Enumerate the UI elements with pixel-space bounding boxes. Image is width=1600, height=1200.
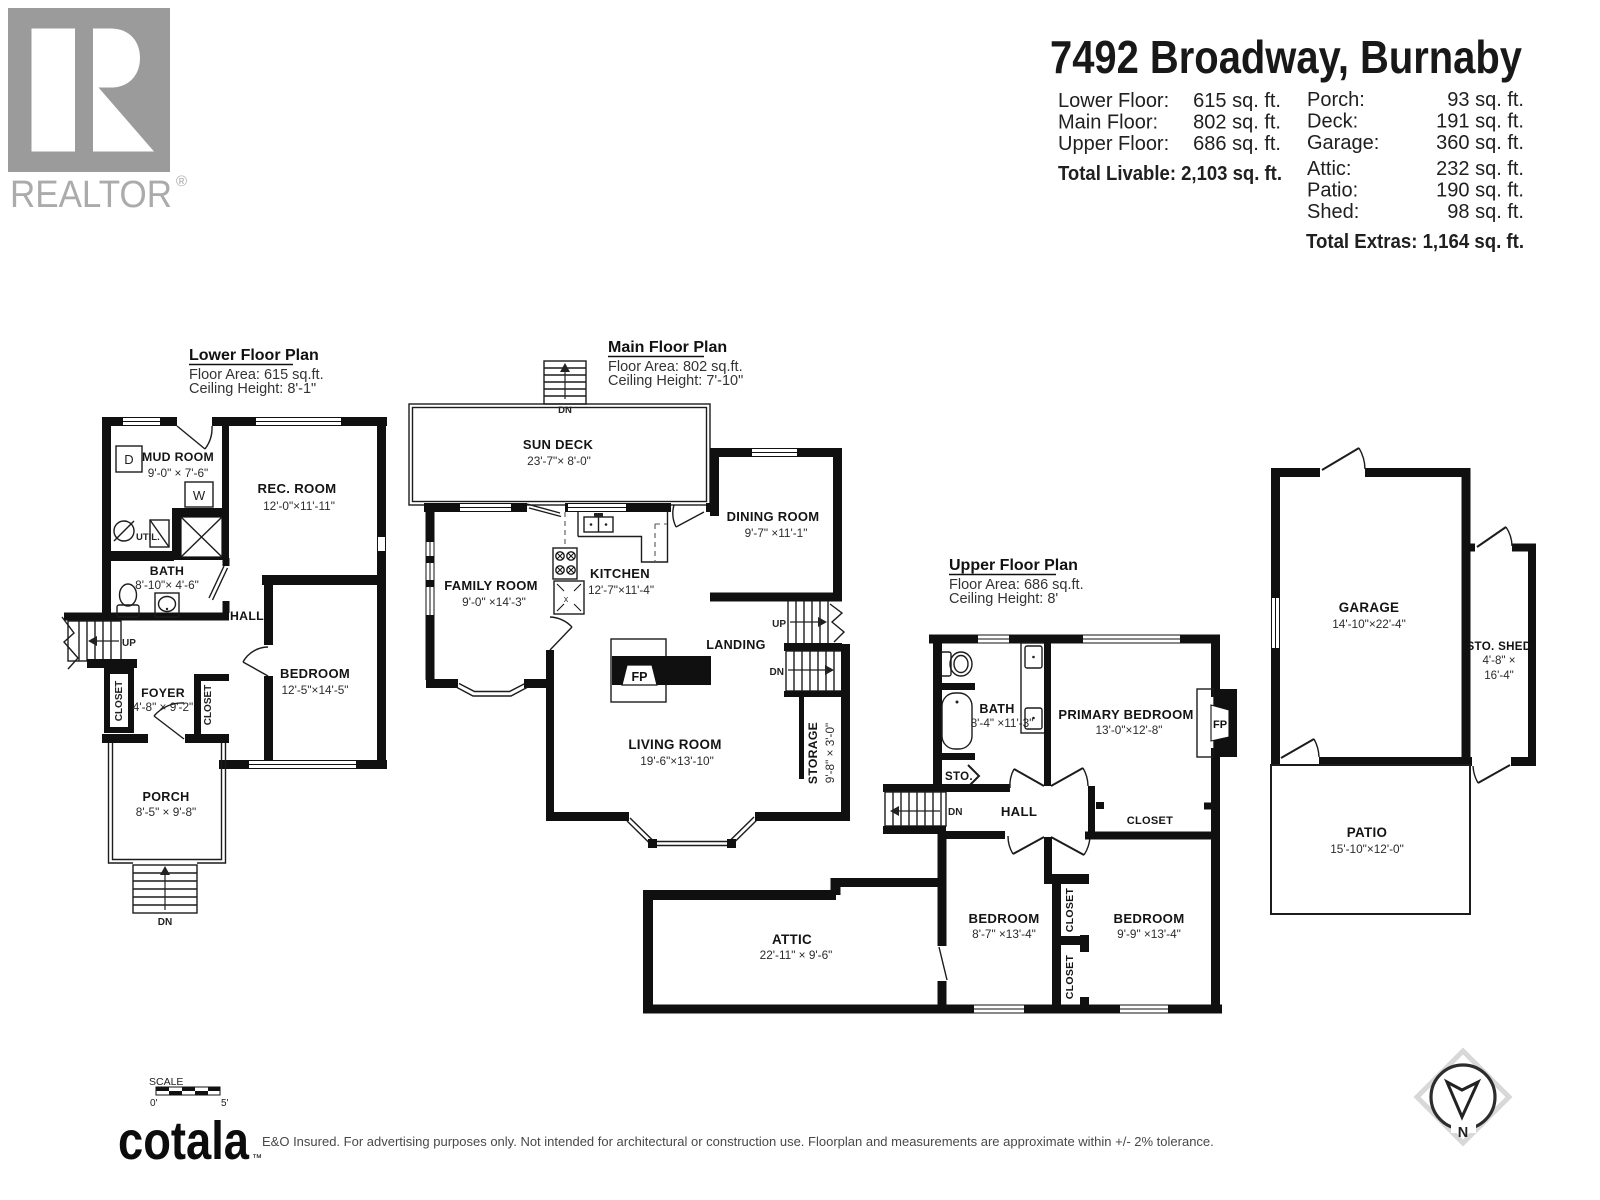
svg-text:686 sq. ft.: 686 sq. ft. xyxy=(1193,133,1281,155)
svg-text:HALL: HALL xyxy=(230,609,264,623)
svg-text:14'-10"×22'-4": 14'-10"×22'-4" xyxy=(1332,617,1406,631)
svg-text:UP: UP xyxy=(772,619,786,630)
svg-text:15'-10"×12'-0": 15'-10"×12'-0" xyxy=(1330,842,1404,856)
svg-text:9'-0" ×14'-3": 9'-0" ×14'-3" xyxy=(462,595,526,609)
svg-text:MUD ROOM: MUD ROOM xyxy=(142,450,214,464)
svg-text:GARAGE: GARAGE xyxy=(1339,600,1400,615)
svg-text:®: ® xyxy=(176,173,187,190)
svg-text:CLOSET: CLOSET xyxy=(1127,815,1173,827)
svg-text:BEDROOM: BEDROOM xyxy=(280,666,350,681)
svg-text:CLOSET: CLOSET xyxy=(1064,888,1076,933)
svg-text:KITCHEN: KITCHEN xyxy=(590,566,650,581)
svg-text:LIVING ROOM: LIVING ROOM xyxy=(628,737,721,752)
svg-text:12'-7"×11'-4": 12'-7"×11'-4" xyxy=(588,583,654,597)
svg-text:PATIO: PATIO xyxy=(1347,825,1387,840)
svg-text:FAMILY ROOM: FAMILY ROOM xyxy=(444,578,538,593)
svg-text:ATTIC: ATTIC xyxy=(772,932,812,947)
svg-text:0': 0' xyxy=(150,1098,158,1109)
svg-text:STORAGE: STORAGE xyxy=(806,722,820,784)
svg-text:Upper Floor Plan: Upper Floor Plan xyxy=(949,557,1078,574)
svg-text:FOYER: FOYER xyxy=(141,686,185,700)
svg-text:BEDROOM: BEDROOM xyxy=(969,911,1040,926)
svg-text:Lower Floor:: Lower Floor: xyxy=(1058,90,1169,112)
svg-text:Garage:: Garage: xyxy=(1307,132,1379,154)
svg-text:Upper Floor:: Upper Floor: xyxy=(1058,133,1169,155)
svg-text:FP: FP xyxy=(632,670,648,684)
svg-text:Shed:: Shed: xyxy=(1307,201,1359,223)
svg-text:Deck:: Deck: xyxy=(1307,111,1358,133)
svg-text:Ceiling Height: 8'-1": Ceiling Height: 8'-1" xyxy=(189,381,316,397)
svg-text:8'-5" × 9'-8": 8'-5" × 9'-8" xyxy=(136,805,196,819)
svg-text:8'-4" ×11'-3": 8'-4" ×11'-3" xyxy=(971,716,1034,730)
svg-text:BEDROOM: BEDROOM xyxy=(1114,911,1185,926)
svg-text:cotala: cotala xyxy=(118,1111,250,1171)
svg-text:™: ™ xyxy=(252,1153,262,1164)
svg-text:22'-11" × 9'-6": 22'-11" × 9'-6" xyxy=(760,948,833,962)
svg-text:9'-7" ×11'-1": 9'-7" ×11'-1" xyxy=(745,526,808,540)
svg-text:4'-8" × 9'-2": 4'-8" × 9'-2" xyxy=(133,700,193,714)
svg-text:Ceiling Height: 8': Ceiling Height: 8' xyxy=(949,591,1058,607)
svg-text:BATH: BATH xyxy=(150,564,184,578)
svg-text:BATH: BATH xyxy=(979,702,1014,716)
svg-text:FP: FP xyxy=(1213,719,1227,731)
svg-text:N: N xyxy=(1458,1125,1468,1141)
svg-text:9'-0" × 7'-6": 9'-0" × 7'-6" xyxy=(148,466,208,480)
svg-text:190 sq. ft.: 190 sq. ft. xyxy=(1436,180,1524,202)
svg-text:Total Extras: 1,164 sq. ft.: Total Extras: 1,164 sq. ft. xyxy=(1306,231,1524,253)
svg-text:CLOSET: CLOSET xyxy=(203,685,214,726)
svg-text:CLOSET: CLOSET xyxy=(114,681,125,722)
svg-text:DN: DN xyxy=(158,917,172,928)
svg-text:SUN DECK: SUN DECK xyxy=(523,437,594,452)
svg-text:SCALE: SCALE xyxy=(149,1076,183,1088)
svg-text:Patio:: Patio: xyxy=(1307,180,1358,202)
svg-text:232 sq. ft.: 232 sq. ft. xyxy=(1436,158,1524,180)
svg-text:8'-10"× 4'-6": 8'-10"× 4'-6" xyxy=(135,578,199,592)
svg-text:STO.: STO. xyxy=(945,771,973,783)
svg-text:191 sq. ft.: 191 sq. ft. xyxy=(1436,111,1524,133)
svg-text:DN: DN xyxy=(558,405,572,416)
svg-text:16'-4": 16'-4" xyxy=(1484,669,1514,682)
svg-text:UTIL.: UTIL. xyxy=(136,532,160,543)
svg-text:PRIMARY BEDROOM: PRIMARY BEDROOM xyxy=(1058,707,1193,722)
svg-text:DN: DN xyxy=(770,667,784,678)
svg-text:Main Floor:: Main Floor: xyxy=(1058,112,1158,134)
svg-text:5': 5' xyxy=(221,1098,229,1109)
svg-text:Ceiling Height: 7'-10": Ceiling Height: 7'-10" xyxy=(608,373,743,389)
svg-text:UP: UP xyxy=(122,638,136,649)
svg-text:8'-7" ×13'-4": 8'-7" ×13'-4" xyxy=(972,927,1036,941)
svg-text:PORCH: PORCH xyxy=(143,790,190,804)
svg-text:Main Floor Plan: Main Floor Plan xyxy=(608,339,727,356)
svg-text:9'-9" ×13'-4": 9'-9" ×13'-4" xyxy=(1117,927,1181,941)
svg-text:Attic:: Attic: xyxy=(1307,158,1351,180)
svg-text:93 sq. ft.: 93 sq. ft. xyxy=(1447,89,1524,111)
svg-text:Porch:: Porch: xyxy=(1307,89,1365,111)
svg-text:12'-5"×14'-5": 12'-5"×14'-5" xyxy=(282,683,349,697)
svg-text:802 sq. ft.: 802 sq. ft. xyxy=(1193,112,1281,134)
svg-text:4'-8" ×: 4'-8" × xyxy=(1482,654,1515,667)
svg-text:W: W xyxy=(193,488,206,503)
svg-text:Total Livable: 2,103 sq. ft.: Total Livable: 2,103 sq. ft. xyxy=(1058,163,1282,185)
svg-text:615 sq. ft.: 615 sq. ft. xyxy=(1193,90,1281,112)
svg-text:REALTOR: REALTOR xyxy=(10,174,172,216)
svg-text:REC. ROOM: REC. ROOM xyxy=(258,481,337,496)
svg-text:12'-0"×11'-11": 12'-0"×11'-11" xyxy=(263,499,335,513)
svg-text:19'-6"×13'-10": 19'-6"×13'-10" xyxy=(640,754,714,768)
svg-text:Lower Floor Plan: Lower Floor Plan xyxy=(189,347,319,364)
svg-text:360 sq. ft.: 360 sq. ft. xyxy=(1436,132,1524,154)
svg-text:STO. SHED: STO. SHED xyxy=(1467,640,1532,653)
svg-text:x: x xyxy=(564,594,569,604)
svg-text:CLOSET: CLOSET xyxy=(1064,955,1076,1000)
svg-text:LANDING: LANDING xyxy=(706,638,765,652)
svg-text:98 sq. ft.: 98 sq. ft. xyxy=(1447,201,1524,223)
svg-text:DN: DN xyxy=(948,807,962,818)
svg-text:7492 Broadway, Burnaby: 7492 Broadway, Burnaby xyxy=(1050,31,1522,83)
svg-text:D: D xyxy=(124,452,133,467)
svg-text:DINING ROOM: DINING ROOM xyxy=(727,509,820,524)
svg-text:23'-7"× 8'-0": 23'-7"× 8'-0" xyxy=(527,454,591,468)
svg-text:E&O Insured. For advertising p: E&O Insured. For advertising purposes on… xyxy=(262,1134,1214,1149)
svg-text:9'-8" × 3'-0": 9'-8" × 3'-0" xyxy=(823,723,837,783)
svg-text:13'-0"×12'-8": 13'-0"×12'-8" xyxy=(1096,723,1163,737)
svg-text:HALL: HALL xyxy=(1001,804,1037,819)
